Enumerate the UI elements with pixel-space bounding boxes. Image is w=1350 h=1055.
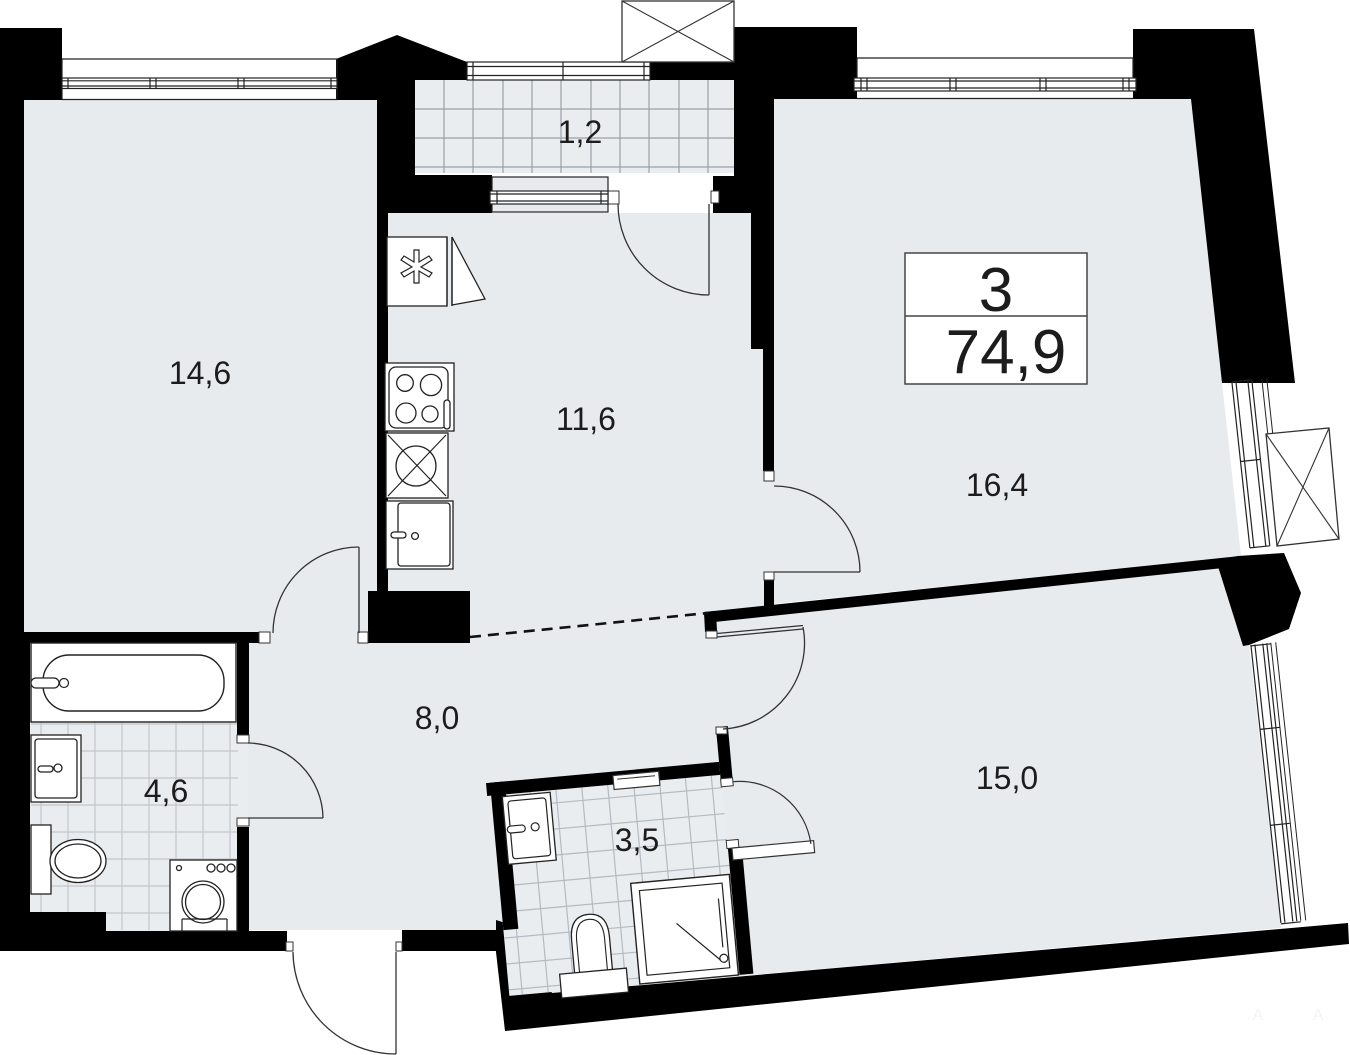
svg-text:15,0: 15,0: [976, 760, 1038, 796]
svg-text:8,0: 8,0: [415, 700, 459, 736]
svg-text:1,2: 1,2: [558, 114, 602, 150]
svg-text:11,6: 11,6: [556, 401, 616, 437]
svg-text:4,6: 4,6: [144, 773, 188, 809]
svg-text:3: 3: [979, 256, 1013, 325]
svg-text:A: A: [1313, 1007, 1324, 1024]
svg-text:3,5: 3,5: [615, 822, 659, 858]
svg-text:74,9: 74,9: [946, 318, 1067, 387]
svg-text:A: A: [1253, 1007, 1264, 1024]
svg-text:14,6: 14,6: [169, 355, 231, 391]
svg-text:16,4: 16,4: [966, 467, 1028, 503]
